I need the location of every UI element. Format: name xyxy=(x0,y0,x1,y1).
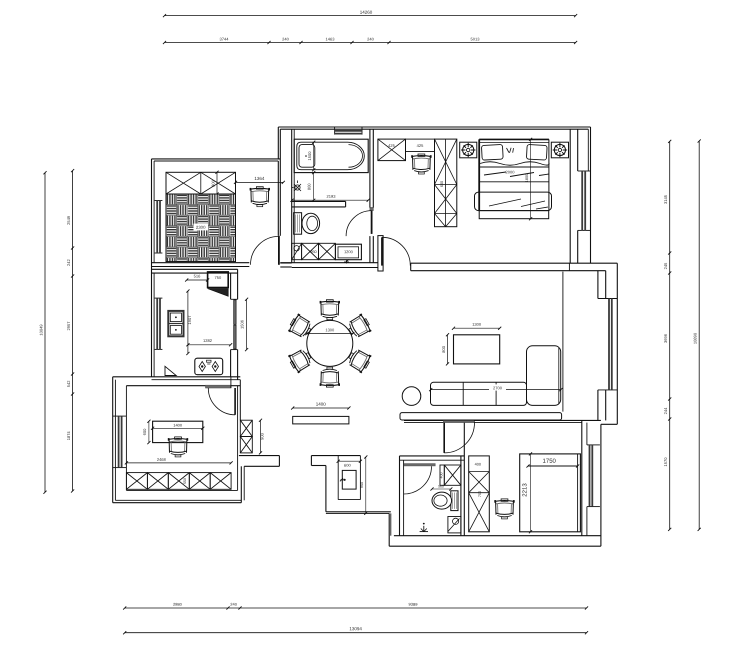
svg-text:5013: 5013 xyxy=(471,36,481,41)
svg-text:425: 425 xyxy=(417,143,424,148)
svg-text:560: 560 xyxy=(438,484,444,488)
svg-text:600: 600 xyxy=(440,181,444,187)
svg-text:244: 244 xyxy=(663,407,668,414)
svg-text:3696: 3696 xyxy=(663,333,668,343)
svg-text:400: 400 xyxy=(440,473,444,479)
svg-text:3145: 3145 xyxy=(663,194,668,204)
svg-text:1300: 1300 xyxy=(325,327,335,332)
svg-text:3744: 3744 xyxy=(220,36,230,41)
svg-text:240: 240 xyxy=(282,36,289,41)
svg-text:1750: 1750 xyxy=(543,458,557,465)
svg-text:1200: 1200 xyxy=(344,249,354,254)
svg-text:1300: 1300 xyxy=(472,322,482,327)
svg-text:425: 425 xyxy=(388,143,395,148)
svg-text:1463: 1463 xyxy=(326,36,336,41)
svg-text:516: 516 xyxy=(194,273,201,278)
svg-text:1400: 1400 xyxy=(316,402,327,407)
svg-text:2000: 2000 xyxy=(506,169,516,174)
svg-text:1400: 1400 xyxy=(173,423,183,428)
svg-text:2957: 2957 xyxy=(66,321,71,331)
svg-text:2549: 2549 xyxy=(66,215,71,225)
svg-text:14260: 14260 xyxy=(360,10,373,15)
svg-text:1874: 1874 xyxy=(66,431,71,441)
svg-text:800: 800 xyxy=(441,345,446,352)
svg-text:950: 950 xyxy=(360,482,364,488)
svg-text:1570: 1570 xyxy=(663,457,668,467)
svg-text:600: 600 xyxy=(344,463,351,468)
svg-text:800: 800 xyxy=(211,179,216,186)
svg-text:2468: 2468 xyxy=(157,457,167,462)
svg-text:1364: 1364 xyxy=(254,176,265,181)
svg-text:700: 700 xyxy=(478,491,482,497)
svg-text:9389: 9389 xyxy=(409,602,419,607)
svg-text:2980: 2980 xyxy=(173,602,183,607)
svg-text:10049: 10049 xyxy=(38,324,43,336)
svg-text:1907: 1907 xyxy=(187,315,192,325)
svg-text:550: 550 xyxy=(183,478,187,484)
svg-text:240: 240 xyxy=(230,602,237,607)
svg-text:1500: 1500 xyxy=(307,151,312,161)
svg-text:600: 600 xyxy=(142,428,147,435)
svg-text:750: 750 xyxy=(215,275,222,280)
svg-text:2700: 2700 xyxy=(493,385,503,390)
svg-text:13094: 13094 xyxy=(349,626,362,631)
svg-text:800: 800 xyxy=(306,183,311,190)
svg-text:245: 245 xyxy=(663,262,668,269)
svg-text:1282: 1282 xyxy=(203,338,213,343)
svg-text:1506: 1506 xyxy=(240,319,245,329)
svg-text:2193: 2193 xyxy=(327,194,337,199)
svg-text:900: 900 xyxy=(260,432,265,439)
svg-text:542: 542 xyxy=(66,380,71,387)
svg-text:240: 240 xyxy=(367,36,374,41)
svg-text:242: 242 xyxy=(66,258,71,265)
svg-text:1800: 1800 xyxy=(525,174,529,182)
svg-text:10890: 10890 xyxy=(693,332,698,344)
svg-text:950: 950 xyxy=(310,250,316,254)
svg-text:2213: 2213 xyxy=(522,483,529,497)
svg-text:2300: 2300 xyxy=(196,225,206,230)
svg-text:400: 400 xyxy=(475,462,481,466)
